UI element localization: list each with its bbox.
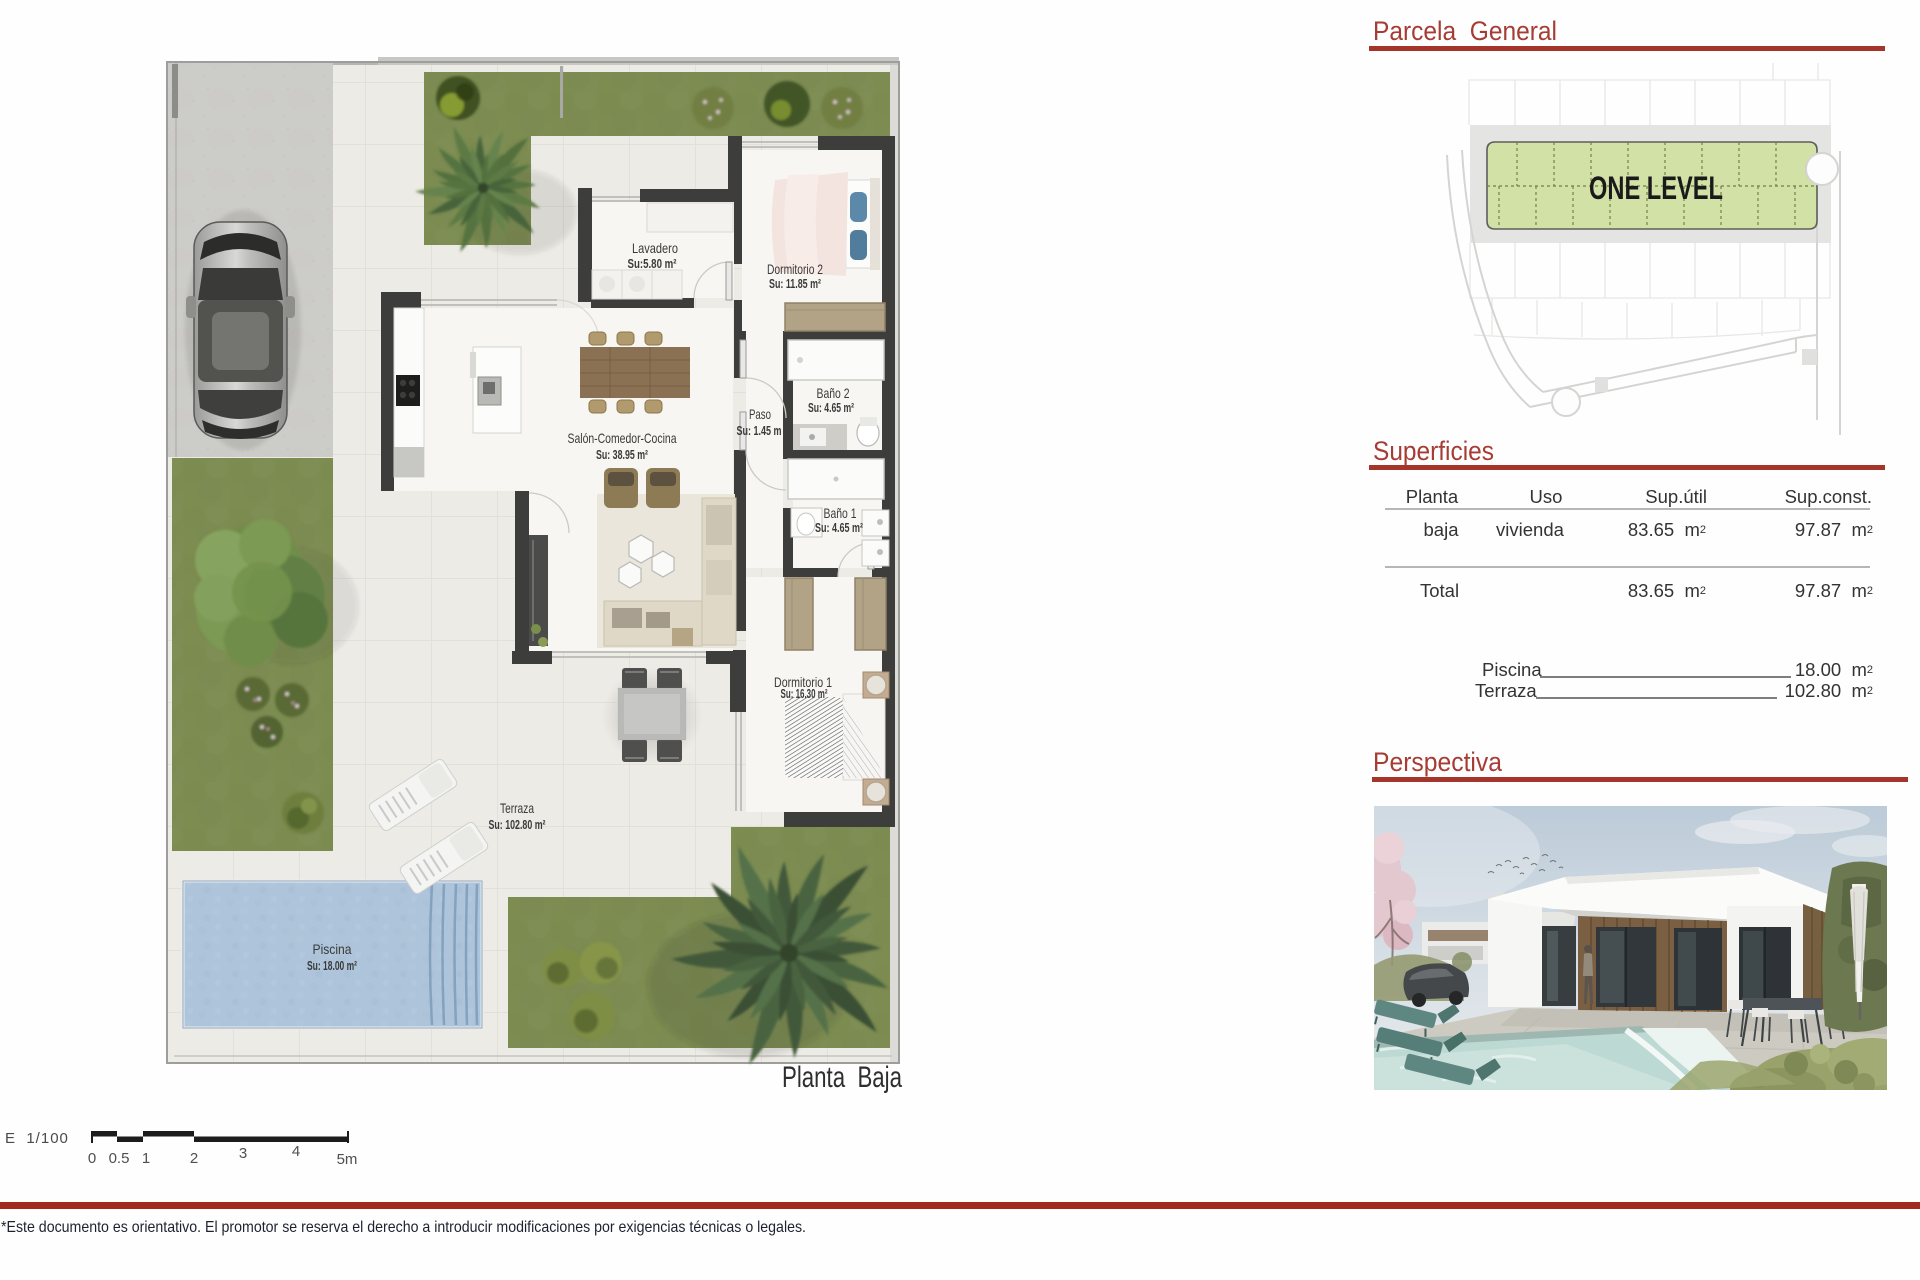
svg-text:Baño 2: Baño 2	[817, 385, 850, 401]
svg-text:Paso: Paso	[749, 406, 771, 422]
svg-text:Superficies: Superficies	[1373, 436, 1494, 466]
svg-text:97.87 m2: 97.87 m2	[1795, 580, 1873, 601]
svg-text:Su: 4.65 m²: Su: 4.65 m²	[815, 521, 863, 535]
svg-text:1: 1	[142, 1150, 150, 1167]
svg-text:vivienda: vivienda	[1496, 519, 1565, 540]
svg-text:Lavadero: Lavadero	[632, 240, 678, 256]
svg-text:Su: 102.80 m²: Su: 102.80 m²	[489, 818, 546, 832]
svg-text:Planta: Planta	[1406, 486, 1459, 507]
svg-text:83.65 m2: 83.65 m2	[1628, 580, 1706, 601]
svg-text:ONE LEVEL: ONE LEVEL	[1589, 170, 1723, 206]
svg-text:Su: 1.45 m: Su: 1.45 m	[737, 424, 782, 438]
svg-text:Terraza: Terraza	[500, 800, 534, 816]
svg-text:Su: 18.00 m²: Su: 18.00 m²	[307, 959, 357, 973]
svg-text:Su: 16.30 m²: Su: 16.30 m²	[781, 687, 828, 701]
svg-text:4: 4	[292, 1143, 300, 1160]
svg-text:Sup.const.: Sup.const.	[1785, 486, 1872, 507]
svg-text:Su: 38.95 m²: Su: 38.95 m²	[596, 448, 648, 462]
svg-text:Su:5.80 m²: Su:5.80 m²	[628, 257, 677, 271]
svg-text:baja: baja	[1424, 519, 1460, 540]
svg-text:Uso: Uso	[1530, 486, 1563, 507]
svg-text:97.87 m2: 97.87 m2	[1795, 519, 1873, 540]
svg-text:Planta Baja: Planta Baja	[782, 1061, 902, 1094]
svg-text:3: 3	[239, 1145, 247, 1162]
svg-text:Parcela General: Parcela General	[1373, 16, 1557, 46]
svg-text:2: 2	[190, 1150, 198, 1167]
svg-text:Piscina: Piscina	[1482, 659, 1542, 680]
svg-text:Salón-Comedor-Cocina: Salón-Comedor-Cocina	[568, 430, 677, 446]
svg-text:18.00 m2: 18.00 m2	[1795, 659, 1873, 680]
svg-text:Sup.útil: Sup.útil	[1645, 486, 1707, 507]
svg-text:102.80 m2: 102.80 m2	[1785, 680, 1873, 701]
svg-text:Piscina: Piscina	[313, 941, 352, 957]
svg-text:Su: 11.85 m²: Su: 11.85 m²	[769, 277, 821, 291]
svg-text:Total: Total	[1420, 580, 1459, 601]
svg-text:83.65 m2: 83.65 m2	[1628, 519, 1706, 540]
svg-text:Perspectiva: Perspectiva	[1373, 747, 1503, 777]
svg-text:0: 0	[88, 1150, 96, 1167]
svg-text:0.5: 0.5	[109, 1150, 130, 1167]
svg-text:*Este documento es orientativo: *Este documento es orientativo. El promo…	[1, 1219, 806, 1236]
svg-text:Baño 1: Baño 1	[824, 505, 857, 521]
svg-text:Terraza: Terraza	[1475, 680, 1537, 701]
svg-text:5m: 5m	[337, 1151, 358, 1168]
svg-text:Dormitorio 2: Dormitorio 2	[767, 261, 823, 277]
svg-text:Su: 4.65 m²: Su: 4.65 m²	[808, 401, 854, 415]
svg-text:E 1/100: E 1/100	[5, 1130, 69, 1147]
